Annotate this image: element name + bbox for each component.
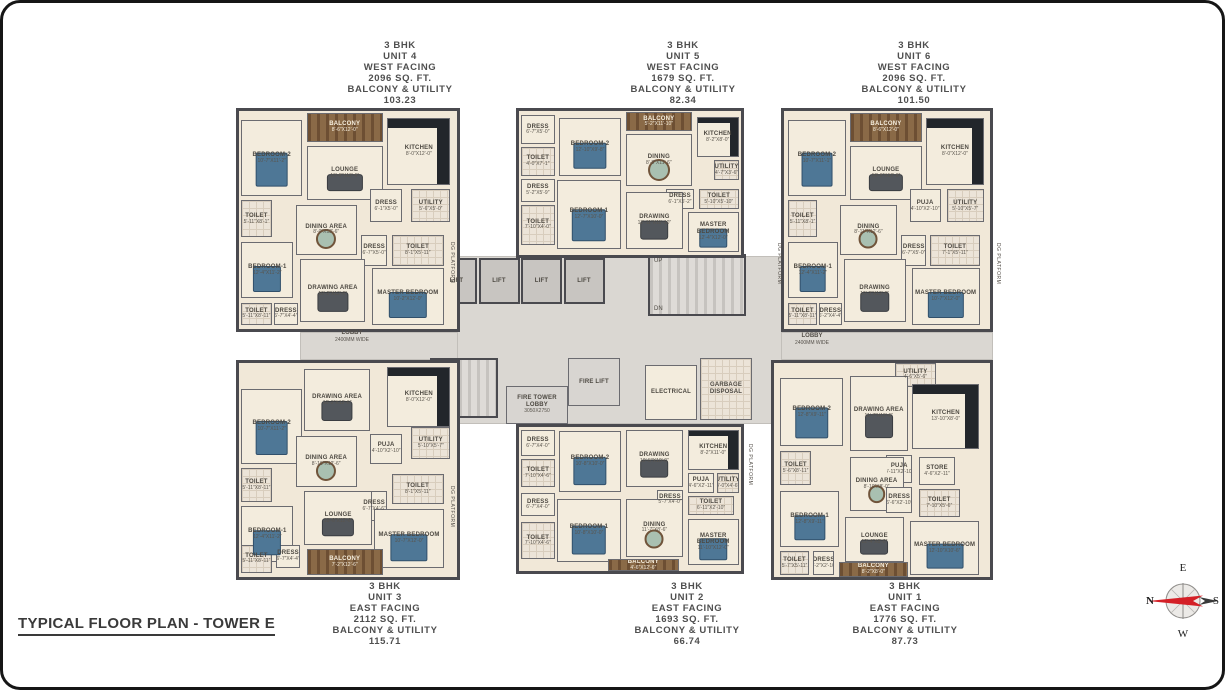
side-label-dg-platform: DG PLATFORM: [776, 243, 782, 284]
room-dim: 11′-7″X12′-6″: [865, 414, 893, 420]
room-dress: DRESS6′-2″X2′-10″: [813, 551, 835, 575]
unit-info-line: 66.74: [634, 636, 739, 647]
room-toilet: TOILET5′-11″X8′-11″: [788, 303, 817, 325]
room-master-bedroom: MASTER BEDROOM11′-10″X12′-0″: [688, 519, 739, 565]
room-master-bedroom: MASTER BEDROOM10′-7″X12′-0″: [912, 268, 980, 325]
room-dim: 8′-2″X11′-0″: [700, 451, 726, 457]
compass-north-label: N: [1146, 595, 1154, 607]
unit-info-line: 3 BHK: [852, 581, 957, 592]
room-drawing-area: DRAWING AREA10′-2″X12′-6″: [304, 369, 369, 431]
room-dim: 8′-0″X12′-0″: [942, 152, 968, 158]
room-dim: 8′-2″X8′-0″: [862, 570, 885, 576]
room-master-bedroom: MASTER BEDROOM10′-7″X12′-0″: [374, 509, 444, 569]
room-dim: 5′-7″X5′-11″: [782, 564, 808, 570]
room-toilet: TOILET5′-6″X8′-11″: [780, 451, 810, 485]
room-drawing-area: DRAWING AREA11′-7″X12′-6″: [850, 376, 908, 451]
room-dim: 13′-10″X8′-0″: [931, 417, 960, 423]
room-kitchen: KITCHEN8′-0″X12′-0″: [387, 118, 450, 186]
room-dim: 11′-7″X8′-6″: [642, 528, 668, 534]
lobby-label: LOBBY2400MM WIDE: [795, 333, 829, 346]
room-drawing-area: DRAWING AREA10′-2″X12′-0″: [300, 259, 365, 322]
unit-info-line: BALCONY & UTILITY: [630, 84, 735, 95]
room-balcony: BALCONY8′-6″X12′-0″: [307, 113, 383, 141]
room-dress: DRESS5′-2″X5′-9″: [521, 179, 554, 202]
room-dim: 6′-2″X4′-4″: [819, 314, 842, 320]
room-dress: DRESS6′-7″X4′-4″: [274, 303, 298, 325]
unit-5-plan: DRESS6′-7″X5′-0″TOILET4′-0″X7′-1″BEDROOM…: [516, 108, 744, 258]
room-dim: 8′-6″X12′-0″: [873, 128, 899, 134]
room-toilet: TOILET6′-11″X2′-10″: [688, 496, 735, 515]
room-kitchen: KITCHEN8′-2″X8′-0″: [697, 117, 739, 157]
room-dim: 8′-0″X12′-6″: [313, 230, 339, 236]
unit-info-line: 2096 SQ. FT.: [861, 73, 966, 84]
room-dining-area: DINING AREA8′-10″X12′-6″: [296, 436, 357, 487]
unit-info-line: 3 BHK: [634, 581, 739, 592]
room-dim: 5′-2″X5′-9″: [526, 191, 549, 197]
compass-east-label: E: [1180, 562, 1187, 574]
room-dim: 12′-4″X12′-0″: [699, 236, 728, 242]
lift-label: LIFT: [535, 278, 548, 285]
unit-info-line: 2112 SQ. FT.: [332, 614, 437, 625]
room-dim: 4′-6″X2′-11″: [924, 472, 950, 478]
room-bedroom-1: BEDROOM-112′-4″X11′-2″: [788, 242, 837, 299]
room-dim: 7′-10″X4′-6″: [525, 541, 551, 547]
unit-info-line: WEST FACING: [861, 62, 966, 73]
unit-info-line: BALCONY & UTILITY: [634, 625, 739, 636]
lift-shaft: LIFT: [521, 258, 562, 304]
room-dim: 6′-7″X4′-0″: [526, 505, 549, 511]
room-kitchen: KITCHEN8′-0″X12′-0″: [926, 118, 984, 186]
room-utility: UTILITY4′-7″X3′-6″: [714, 160, 738, 180]
unit-info-unit-4: 3 BHKUNIT 4WEST FACING2096 SQ. FT.BALCON…: [347, 40, 452, 106]
room-dim: 4′-0″X4′-6″: [717, 484, 739, 490]
room-dim: 10′-2″X12′-6″: [860, 292, 889, 298]
room-dining: DINING8′-11″X12′-6″: [840, 205, 898, 255]
room-toilet: TOILET4′-0″X7′-1″: [521, 147, 554, 176]
room-dim: 12′-8″X9′-11″: [798, 413, 826, 419]
room-bedroom-1: BEDROOM-110′-8″X10′-0″: [557, 499, 621, 562]
room-label: MASTER BEDROOM: [689, 222, 738, 236]
room-master-bedroom: MASTER BEDROOM12′-10″X10′-6″: [910, 521, 979, 575]
room-dim: 5′-10″X5′-7″: [952, 207, 978, 213]
room-dim: 8′-10″X12′-6″: [312, 462, 341, 468]
unit-info-unit-5: 3 BHKUNIT 5WEST FACING1679 SQ. FT.BALCON…: [630, 40, 735, 106]
room-dim: 8′-0″X12′-0″: [406, 152, 432, 158]
room-dim: 10′-5″X10′-0″: [640, 459, 669, 465]
room-dim: 5′-6″X5′-0″: [419, 207, 442, 213]
room-dim: 8′-11″X12′-6″: [854, 230, 882, 236]
room-bedroom-2: BEDROOM-212′-8″X9′-11″: [780, 378, 843, 446]
room-dim: 5′-10″X5′-7″: [418, 444, 444, 450]
room-dim: 4′-11″X2′-10″: [886, 470, 912, 476]
room-toilet: TOILET8′-1″X5′-11″: [392, 235, 444, 266]
compass: E N S W: [1145, 563, 1221, 639]
room-balcony: BALCONY8′-2″X8′-0″: [839, 562, 908, 577]
unit-info-line: 2096 SQ. FT.: [347, 73, 452, 84]
room-dim: 10′-7″X11′-1″: [803, 159, 831, 165]
room-puja: PUJA4′-6″X2′-11″: [688, 473, 715, 493]
room-dim: 7′-1″X5′-11″: [942, 251, 968, 257]
unit-info-line: BALCONY & UTILITY: [332, 625, 437, 636]
unit-info-line: UNIT 2: [634, 592, 739, 603]
room-dim: 5′-2″X11′-10″: [645, 122, 673, 128]
unit-info-line: 1679 SQ. FT.: [630, 73, 735, 84]
core-room-electrical: ELECTRICAL: [645, 365, 697, 420]
room-puja: PUJA4′-10″X2′-10″: [370, 434, 403, 464]
room-dim: 10′-2″X12′-0″: [394, 297, 423, 303]
room-dress: DRESS6′-6″X2′-10″: [886, 487, 912, 513]
room-dim: 5′-11″X8′-11″: [242, 486, 270, 492]
room-dim: 6′-7″X4′-4″: [274, 314, 297, 320]
lobby-label-text: LOBBY: [795, 333, 829, 340]
unit-info-line: 82.34: [630, 95, 735, 106]
room-dim: 10′-2″X12′-6″: [323, 401, 352, 407]
room-dim: 12′-7″X10′-0″: [575, 215, 604, 221]
room-dim: 4′-10″X2′-10″: [372, 449, 401, 455]
lift-shaft: LIFT: [479, 258, 520, 304]
unit-info-unit-2: 3 BHKUNIT 2EAST FACING1693 SQ. FT.BALCON…: [634, 581, 739, 647]
room-dim: 10′-7″X11′-2″: [257, 427, 285, 433]
unit-info-line: BALCONY & UTILITY: [852, 625, 957, 636]
room-balcony: BALCONY8′-6″X12′-0″: [850, 113, 922, 141]
room-dim: 7′-10″X5′-6″: [926, 504, 952, 510]
room-balcony: BALCONY7′-2″X12′-6″: [307, 549, 383, 575]
room-dim: 12′-4″X11′-2″: [799, 271, 827, 277]
lobby-label-sub: 2400MM WIDE: [795, 340, 829, 346]
room-utility: UTILITY5′-10″X5′-7″: [947, 189, 984, 222]
room-bedroom-1: BEDROOM-112′-8″X9′-11″: [780, 491, 838, 547]
room-dim: 4′-6″X2′-11″: [688, 484, 714, 490]
room-dim: 10′-6″X12′-6″: [872, 174, 901, 180]
room-dim: 10′-6″X12′-6″: [330, 174, 359, 180]
room-kitchen: KITCHEN13′-10″X8′-0″: [912, 384, 979, 448]
unit-info-line: 1693 SQ. FT.: [634, 614, 739, 625]
core-room-dim: 3050X2750: [524, 409, 550, 415]
room-dim: 5′-6″X8′-11″: [783, 469, 809, 475]
room-dim: 12′-4″X11′-2″: [253, 535, 281, 541]
room-dim: 6′-7″X5′-0″: [363, 251, 386, 257]
room-dim: 12′-10″X10′-6″: [929, 549, 961, 555]
unit-info-line: UNIT 4: [347, 51, 452, 62]
room-dim: 6′-2″X2′-10″: [813, 564, 835, 570]
room-dress: DRESS6′-1″X5′-0″: [370, 189, 403, 222]
room-balcony: BALCONY5′-2″X11′-10″: [626, 112, 693, 131]
core-room-fire-lift: FIRE LIFT: [568, 358, 620, 406]
unit-info-line: 87.73: [852, 636, 957, 647]
room-dining-area: DINING AREA8′-0″X12′-6″: [296, 205, 357, 255]
stair-dn-label: DN: [654, 306, 663, 312]
unit-info-line: 3 BHK: [332, 581, 437, 592]
room-dim: 7′-2″X12′-6″: [332, 563, 358, 569]
room-dim: 6′-7″X5′-0″: [526, 130, 549, 136]
room-dim: 10′-8″X10′-0″: [576, 462, 605, 468]
room-drawing: DRAWING10′-5″X10′-0″: [626, 430, 684, 488]
room-bedroom-2: BEDROOM-212′-10″X9′-8″: [559, 118, 621, 176]
room-dim: 6′-7″X4′-0″: [526, 444, 549, 450]
room-dim: 11′-10″X12′-0″: [698, 546, 729, 552]
room-dim: 10′-6″X12′-6″: [324, 519, 353, 525]
core-room-label: FIRE LIFT: [579, 379, 609, 386]
room-dining: DINING8′-8″X11′-6″: [626, 134, 693, 186]
unit-info-line: 103.23: [347, 95, 452, 106]
core-room-garbage-disposal: GARBAGE DISPOSAL: [700, 358, 752, 420]
room-toilet: TOILET5′-11″X8′-11″: [241, 468, 272, 502]
lobby-label-sub: 2400MM WIDE: [335, 337, 369, 343]
room-dim: 5′-7″X4′-0″: [658, 500, 681, 506]
core-room-label: FIRE TOWER LOBBY: [507, 395, 567, 409]
floor-plan-canvas: LIFTLIFTLIFTLIFTUPDNFIRE TOWER LOBBY3050…: [0, 0, 1225, 690]
lobby-label-text: LOBBY: [335, 330, 369, 337]
room-dining: DINING11′-7″X8′-6″: [626, 499, 684, 557]
unit-3-plan: DRAWING AREA10′-2″X12′-6″KITCHEN8′-0″X12…: [236, 360, 460, 580]
room-lounge: LOUNGE12′-4″X8′-0″: [845, 517, 903, 562]
room-utility: UTILITY4′-0″X4′-6″: [717, 473, 739, 493]
room-master-bedroom: MASTER BEDROOM10′-2″X12′-0″: [372, 268, 444, 325]
room-toilet: TOILET5′-10″X5′-10″: [699, 189, 739, 209]
room-dim: 4′-6″X12′-6″: [630, 566, 656, 571]
room-toilet: TOILET7′-10″X4′-0″: [521, 205, 554, 245]
room-dim: 4′-0″X7′-1″: [526, 162, 549, 168]
room-toilet: TOILET7′-10″X5′-6″: [919, 489, 960, 517]
room-bedroom-2: BEDROOM-210′-7″X11′-2″: [241, 120, 302, 196]
room-dim: 5′-10″X5′-10″: [704, 200, 733, 206]
room-utility: UTILITY5′-10″X5′-7″: [411, 427, 450, 459]
room-toilet: TOILET7′-1″X5′-11″: [930, 235, 979, 266]
room-kitchen: KITCHEN8′-2″X11′-0″: [688, 430, 739, 470]
room-toilet: TOILET8′-1″X5′-11″: [392, 474, 444, 504]
room-dim: 8′-0″X12′-0″: [406, 398, 432, 404]
unit-info-line: UNIT 1: [852, 592, 957, 603]
room-toilet: TOILET5′-11″X8′-11″: [241, 303, 272, 325]
unit-2-plan: DRESS6′-7″X4′-0″BEDROOM-210′-8″X10′-0″DR…: [516, 424, 744, 574]
room-dim: 8′-1″X5′-11″: [405, 490, 431, 496]
room-dim: 6′-6″X2′-10″: [886, 501, 912, 507]
room-store: STORE4′-6″X2′-11″: [919, 457, 956, 485]
room-kitchen: KITCHEN8′-0″X12′-0″: [387, 367, 450, 427]
room-dim: 8′-8″X11′-6″: [646, 161, 672, 167]
unit-info-line: 1776 SQ. FT.: [852, 614, 957, 625]
room-dress: DRESS6′-7″X4′-0″: [521, 493, 554, 516]
compass-south-label: S: [1213, 595, 1219, 607]
room-dim: 12′-4″X11′-2″: [253, 271, 281, 277]
room-toilet: TOILET7′-10″X4′-6″: [521, 459, 554, 488]
plan-title: TYPICAL FLOOR PLAN - TOWER E: [18, 615, 275, 636]
lobby-floor: [300, 332, 458, 360]
unit-info-line: UNIT 6: [861, 51, 966, 62]
room-dim: 12′-11″X11′-10″: [638, 221, 672, 227]
room-dim: 10′-2″X12′-0″: [318, 292, 347, 298]
room-dim: 10′-7″X12′-0″: [931, 297, 960, 303]
room-dim: 7′-10″X4′-0″: [525, 225, 551, 231]
core-room-label: GARBAGE DISPOSAL: [701, 382, 751, 396]
room-dim: 12′-4″X8′-0″: [861, 540, 887, 546]
unit-info-line: 3 BHK: [347, 40, 452, 51]
unit-info-line: 101.50: [861, 95, 966, 106]
room-dress: DRESS6′-2″X4′-4″: [819, 303, 842, 325]
room-master-bedroom: MASTER BEDROOM12′-4″X12′-0″: [688, 212, 739, 252]
room-dim: 4′-10″X2′-10″: [911, 207, 940, 213]
lift-label: LIFT: [577, 278, 590, 285]
unit-info-line: 3 BHK: [630, 40, 735, 51]
core-room-fire-tower-lobby: FIRE TOWER LOBBY3050X2750: [506, 386, 568, 424]
lobby-label: LOBBY2400MM WIDE: [335, 330, 369, 343]
room-dim: 8′-10″X8′-0″: [864, 485, 890, 491]
room-puja: PUJA4′-10″X2′-10″: [910, 189, 941, 222]
unit-info-line: WEST FACING: [630, 62, 735, 73]
unit-4-plan: BEDROOM-210′-7″X11′-2″BALCONY8′-6″X12′-0…: [236, 108, 460, 332]
room-label: MASTER BEDROOM: [689, 533, 738, 547]
lift-shaft: LIFT: [564, 258, 605, 304]
room-dim: 8′-1″X5′-11″: [405, 251, 431, 257]
room-dim: 4′-6″X5′-6″: [904, 375, 927, 381]
room-bedroom-2: BEDROOM-210′-7″X11′-2″: [241, 389, 302, 464]
room-dim: 12′-10″X9′-8″: [576, 148, 605, 154]
room-bedroom-1: BEDROOM-112′-4″X11′-2″: [241, 242, 293, 299]
unit-info-line: EAST FACING: [332, 603, 437, 614]
room-dim: 8′-6″X12′-0″: [332, 128, 358, 134]
room-dress: DRESS6′-7″X4′-0″: [521, 430, 554, 456]
room-dim: 5′-11″X8′-11″: [242, 559, 270, 565]
room-balcony: BALCONY4′-6″X12′-6″: [608, 559, 679, 571]
room-dim: 8′-2″X8′-0″: [706, 138, 729, 144]
side-label-dg-platform: DG PLATFORM: [747, 444, 753, 485]
room-dim: 5′-11″X8′-11″: [789, 314, 817, 320]
unit-info-line: 3 BHK: [861, 40, 966, 51]
room-dim: 7′-10″X4′-6″: [525, 474, 551, 480]
room-toilet: TOILET5′-11″X8′-1″: [788, 200, 817, 237]
room-dim: 6′-7″X5′-0″: [902, 251, 925, 257]
room-toilet: TOILET7′-10″X4′-6″: [521, 522, 554, 559]
room-lounge: LOUNGE10′-6″X12′-6″: [304, 491, 372, 545]
unit-info-line: 115.71: [332, 636, 437, 647]
unit-info-line: UNIT 3: [332, 592, 437, 603]
unit-info-line: EAST FACING: [852, 603, 957, 614]
unit-info-unit-3: 3 BHKUNIT 3EAST FACING2112 SQ. FT.BALCON…: [332, 581, 437, 647]
room-dim: 6′-1″X5′-2″: [668, 200, 691, 206]
unit-info-line: BALCONY & UTILITY: [347, 84, 452, 95]
staircase-upper: UPDN: [648, 254, 746, 316]
room-dim: 10′-8″X10′-0″: [575, 531, 604, 537]
room-dim: 6′-1″X5′-0″: [375, 207, 398, 213]
unit-1-plan: UTILITY4′-6″X5′-6″BEDROOM-212′-8″X9′-11″…: [771, 360, 993, 580]
room-dim: 5′-11″X8′-1″: [244, 220, 270, 226]
stair-up-label: UP: [654, 258, 662, 264]
side-label-dg-platform: DG PLATFORM: [449, 486, 455, 527]
room-bedroom-2: BEDROOM-210′-8″X10′-0″: [559, 431, 621, 491]
unit-info-unit-1: 3 BHKUNIT 1EAST FACING1776 SQ. FT.BALCON…: [852, 581, 957, 647]
room-dim: 10′-7″X11′-2″: [257, 159, 285, 165]
unit-info-line: EAST FACING: [634, 603, 739, 614]
room-dress: DRESS6′-7″X5′-0″: [521, 115, 554, 144]
room-bedroom-1: BEDROOM-112′-7″X10′-0″: [557, 180, 621, 249]
unit-info-line: UNIT 5: [630, 51, 735, 62]
room-dim: 6′-11″X2′-10″: [697, 506, 725, 512]
room-dim: 6′-7″X4′-4″: [276, 557, 299, 563]
room-dim: 10′-7″X12′-0″: [395, 539, 424, 545]
unit-info-line: BALCONY & UTILITY: [861, 84, 966, 95]
room-toilet: TOILET5′-11″X8′-1″: [241, 200, 272, 237]
room-dim: 6′-7″X4′-6″: [363, 507, 386, 513]
room-utility: UTILITY5′-6″X5′-0″: [411, 189, 450, 222]
unit-info-line: WEST FACING: [347, 62, 452, 73]
lift-label: LIFT: [492, 278, 505, 285]
room-dim: 5′-11″X8′-1″: [790, 220, 816, 226]
room-dim: 12′-8″X9′-11″: [795, 520, 823, 526]
unit-6-plan: BEDROOM-210′-7″X11′-1″BALCONY8′-6″X12′-0…: [781, 108, 993, 332]
side-label-dg-platform: DG PLATFORM: [449, 242, 455, 283]
unit-info-unit-6: 3 BHKUNIT 6WEST FACING2096 SQ. FT.BALCON…: [861, 40, 966, 106]
compass-west-label: W: [1178, 628, 1188, 640]
room-dim: 5′-11″X8′-11″: [242, 314, 270, 320]
room-dim: 4′-7″X3′-6″: [715, 171, 738, 177]
room-bedroom-2: BEDROOM-210′-7″X11′-1″: [788, 120, 846, 196]
room-drawing: DRAWING10′-2″X12′-6″: [844, 259, 906, 322]
side-label-dg-platform: DG PLATFORM: [995, 243, 1001, 284]
core-room-label: ELECTRICAL: [651, 389, 691, 396]
room-toilet: TOILET5′-7″X5′-11″: [780, 551, 808, 575]
